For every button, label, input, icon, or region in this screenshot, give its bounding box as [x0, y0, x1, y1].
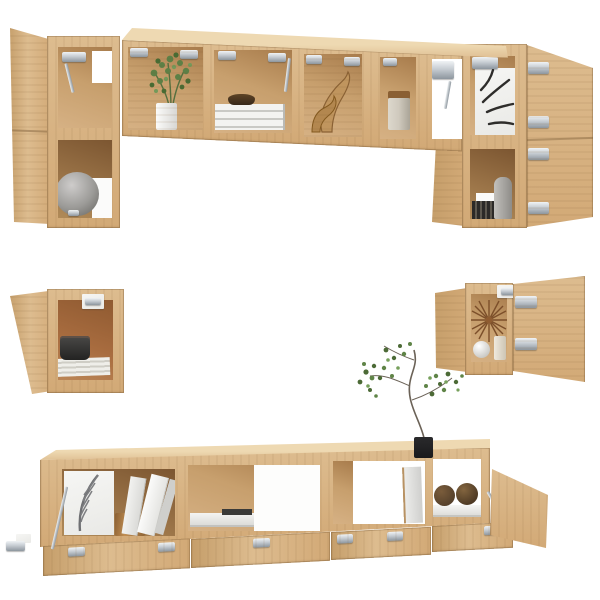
- tv-flap-door: [191, 532, 330, 568]
- flap-hinge-icon: [130, 48, 148, 57]
- left-cabinet-lower-shelf: [58, 140, 112, 218]
- left-cabinet-door-open: [8, 26, 52, 226]
- flap-hinge-icon: [158, 542, 175, 552]
- shelf-compartment-canister: [380, 57, 416, 139]
- compartment-side-wall: [333, 461, 353, 524]
- flap-hinge-icon: [306, 55, 322, 64]
- right-cabinet-lower-shelf: [470, 149, 515, 219]
- flap-hinge-icon: [68, 210, 79, 216]
- middle-left-shelf: [58, 300, 113, 380]
- shelf-compartment-plant: [128, 47, 203, 130]
- flap-hinge-icon: [218, 51, 236, 60]
- flap-hinge-icon: [253, 538, 270, 548]
- door-hinge-icon: [515, 296, 537, 308]
- book-stack: [215, 104, 285, 130]
- tv-compartment-feather: [62, 469, 175, 536]
- door-hinge-icon: [528, 116, 549, 128]
- dark-planter: [60, 336, 90, 360]
- woven-ball: [434, 485, 455, 506]
- shelf-compartment-books: [214, 50, 292, 133]
- flap-stay-arm-icon: [64, 63, 74, 93]
- door-seam: [527, 137, 593, 141]
- storage-canister: [388, 98, 410, 130]
- flap-hinge-icon: [6, 541, 25, 551]
- middle-right-door-open: [513, 276, 585, 384]
- door-hinge-icon: [528, 202, 549, 214]
- shelf-compartment-sculpture: [304, 54, 362, 137]
- candle: [494, 336, 506, 360]
- open-back-wall: [254, 465, 320, 531]
- flap-hinge-icon: [344, 57, 360, 66]
- door-hinge-icon: [515, 338, 537, 350]
- flap-hinge-icon: [472, 57, 498, 69]
- door-hinge-plate: [82, 294, 104, 309]
- woven-ball: [456, 483, 478, 505]
- flat-book-stack: [190, 513, 254, 527]
- gray-vase: [494, 177, 512, 219]
- right-cabinet-door-open: [527, 42, 593, 230]
- flap-hinge-icon: [68, 547, 85, 557]
- shelf-compartment-open: [432, 59, 462, 139]
- white-door-panel: [402, 467, 423, 524]
- leaf-art-icon: [475, 68, 515, 135]
- wood-sculpture-icon: [306, 68, 360, 134]
- door-hinge-icon: [528, 62, 549, 74]
- tv-flap-door: [331, 527, 431, 560]
- open-back-patch: [92, 51, 112, 83]
- flap-stay-arm-icon: [444, 81, 452, 109]
- door-seam: [8, 129, 52, 133]
- leaf-print-panel: [475, 68, 515, 135]
- dark-bowl: [228, 94, 255, 105]
- flap-hinge-icon: [180, 50, 198, 59]
- door-hinge-icon: [528, 148, 549, 160]
- flap-hinge-icon: [62, 52, 86, 62]
- flat-book-dark-spine: [222, 509, 252, 515]
- left-cabinet-upper-shelf: [58, 47, 112, 128]
- tv-compartment-open: [333, 461, 425, 524]
- tv-compartment-books: [188, 465, 320, 531]
- flap-stay-arm-icon: [284, 58, 291, 92]
- flap-hinge-bracket-icon: [432, 61, 454, 79]
- tv-flap-door: [43, 538, 190, 576]
- flap-hinge-icon: [383, 58, 397, 66]
- middle-right-side: [432, 288, 467, 374]
- flap-hinge-icon: [387, 531, 403, 541]
- black-plant-pot: [414, 437, 433, 458]
- door-hinge-icon: [85, 298, 101, 305]
- white-book-stack: [433, 505, 481, 517]
- paper-stack: [58, 357, 110, 377]
- flap-hinge-icon: [268, 53, 286, 62]
- flap-hinge-icon: [337, 534, 353, 544]
- white-sphere: [473, 341, 490, 358]
- middle-right-shelf: [471, 294, 507, 362]
- tv-compartment-balls: [433, 459, 481, 517]
- white-plant-pot: [156, 103, 177, 130]
- feather-print-panel: [64, 471, 114, 535]
- feather-art-icon: [64, 471, 114, 535]
- right-cabinet-upper-shelf: [470, 56, 515, 135]
- product-photo-tv-wall-unit: [0, 0, 600, 600]
